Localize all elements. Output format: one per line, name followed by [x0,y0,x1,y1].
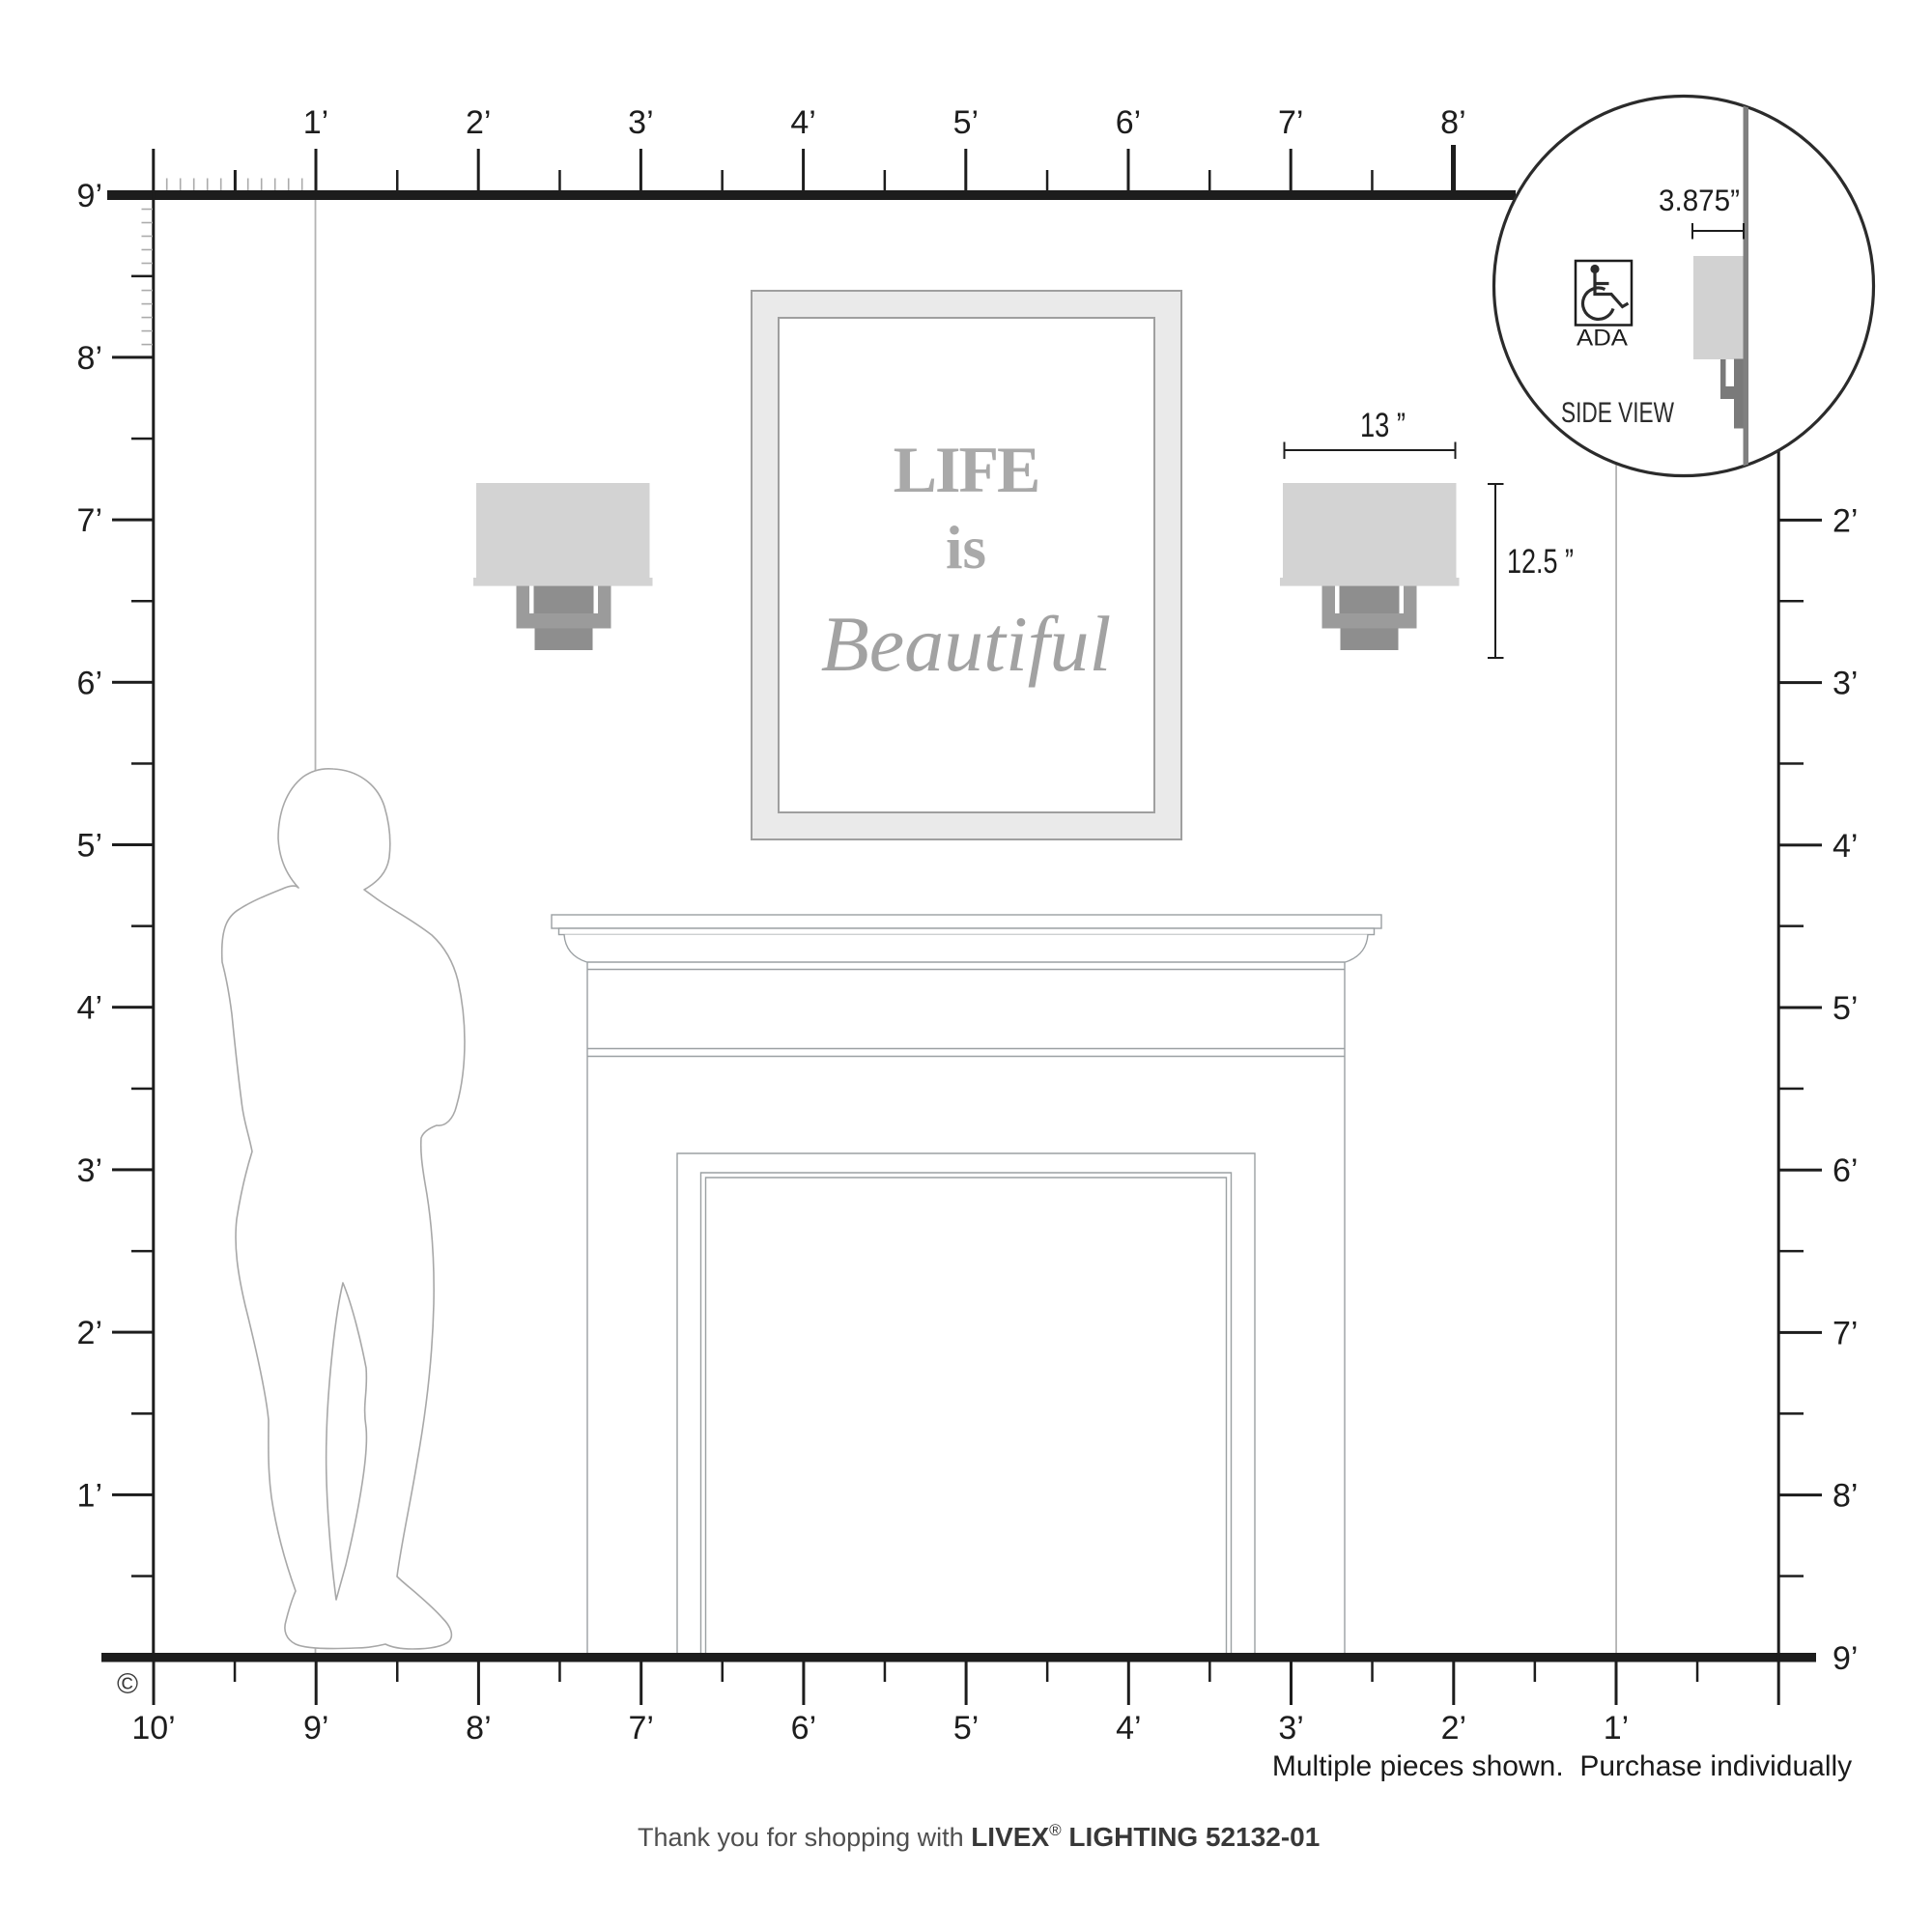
svg-text:8’: 8’ [466,1710,491,1747]
svg-text:3.875”: 3.875” [1659,183,1740,217]
svg-text:9’: 9’ [1833,1640,1858,1677]
svg-text:5’: 5’ [953,1710,979,1747]
svg-text:4’: 4’ [1116,1710,1141,1747]
svg-text:3’: 3’ [77,1152,102,1189]
svg-text:SIDE VIEW: SIDE VIEW [1561,397,1674,429]
svg-text:8’: 8’ [1833,1478,1858,1515]
svg-text:6’: 6’ [1833,1152,1858,1189]
svg-text:3’: 3’ [1833,666,1858,702]
svg-text:7’: 7’ [77,502,102,539]
svg-text:9’: 9’ [77,178,102,214]
svg-text:4’: 4’ [1833,828,1858,865]
svg-text:5’: 5’ [1833,990,1858,1027]
svg-text:1’: 1’ [303,104,328,141]
svg-text:7’: 7’ [1833,1315,1858,1351]
svg-text:ADA: ADA [1577,326,1628,352]
svg-text:2’: 2’ [77,1315,102,1351]
svg-text:1’: 1’ [1604,1710,1629,1747]
svg-text:10’: 10’ [131,1710,175,1747]
svg-text:7’: 7’ [628,1710,653,1747]
svg-text:Thank you for shopping with LI: Thank you for shopping with LIVEX® LIGHT… [638,1821,1320,1852]
svg-text:2’: 2’ [1833,502,1858,539]
svg-text:3’: 3’ [1278,1710,1303,1747]
svg-text:5’: 5’ [953,104,979,141]
svg-text:2’: 2’ [1441,1710,1466,1747]
svg-text:7’: 7’ [1278,104,1303,141]
svg-text:5’: 5’ [77,828,102,865]
svg-text:LIFE: LIFE [894,433,1039,506]
svg-text:2’: 2’ [466,104,491,141]
svg-text:8’: 8’ [1440,104,1465,141]
svg-text:is: is [946,514,986,582]
svg-text:4’: 4’ [77,990,102,1027]
svg-text:12.5 ”: 12.5 ” [1507,543,1574,581]
svg-text:6’: 6’ [77,665,102,701]
svg-text:4’: 4’ [790,104,815,141]
svg-text:8’: 8’ [77,340,102,377]
svg-text:9’: 9’ [303,1710,328,1747]
svg-text:1’: 1’ [77,1477,102,1514]
svg-text:6’: 6’ [1116,104,1141,141]
svg-text:©: © [117,1668,138,1700]
svg-text:13 ”: 13 ” [1360,407,1406,444]
svg-text:Beautiful: Beautiful [821,600,1112,688]
svg-text:6’: 6’ [791,1710,816,1747]
svg-text:3’: 3’ [628,104,653,141]
svg-text:Multiple pieces shown. Purcha: Multiple pieces shown. Purchase individu… [1272,1750,1852,1782]
